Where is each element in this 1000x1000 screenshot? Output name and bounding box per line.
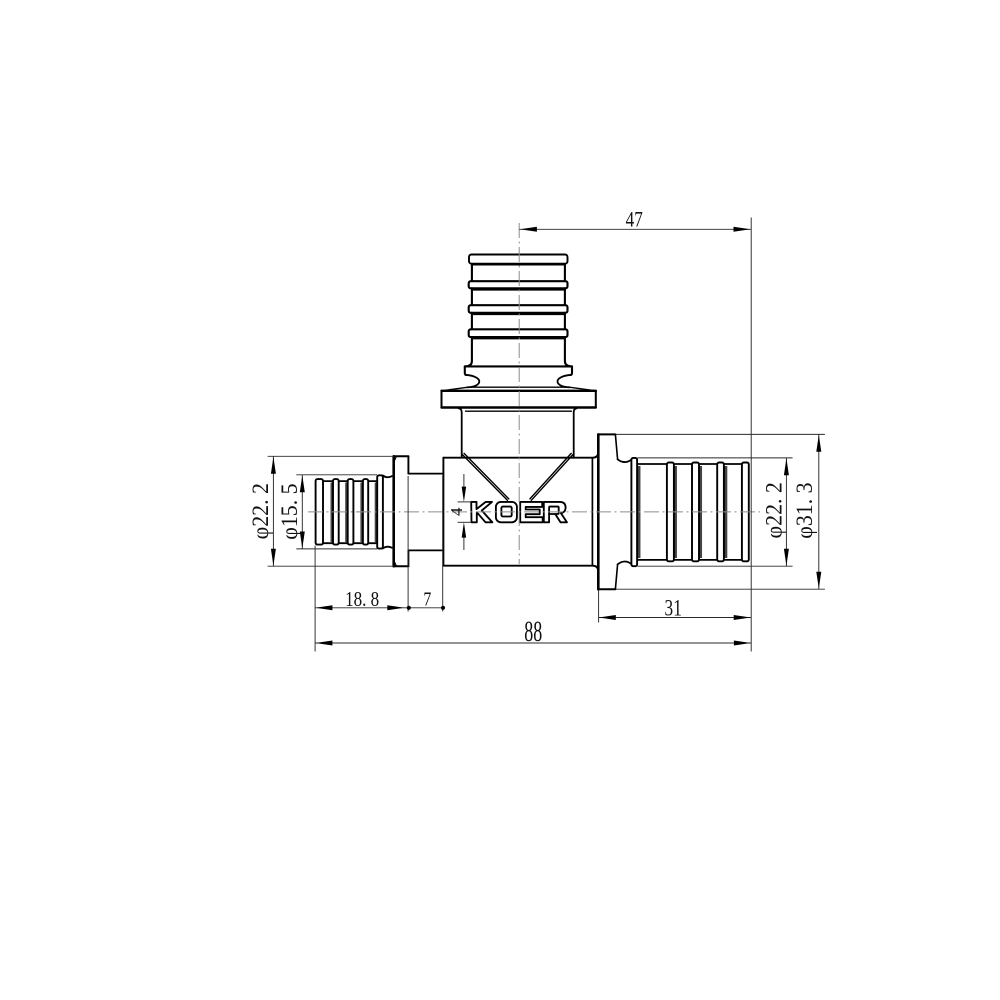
- svg-text:31: 31: [665, 596, 682, 621]
- svg-text:18. 8: 18. 8: [345, 588, 379, 611]
- svg-text:47: 47: [626, 207, 643, 232]
- svg-text:φ15. 5: φ15. 5: [276, 483, 302, 539]
- svg-text:7: 7: [423, 588, 431, 610]
- svg-text:φ22. 2: φ22. 2: [761, 482, 787, 538]
- svg-text:4: 4: [447, 507, 466, 516]
- svg-text:φ31. 3: φ31. 3: [791, 482, 817, 538]
- svg-text:88: 88: [524, 616, 542, 649]
- svg-text:φ22. 2: φ22. 2: [247, 483, 273, 539]
